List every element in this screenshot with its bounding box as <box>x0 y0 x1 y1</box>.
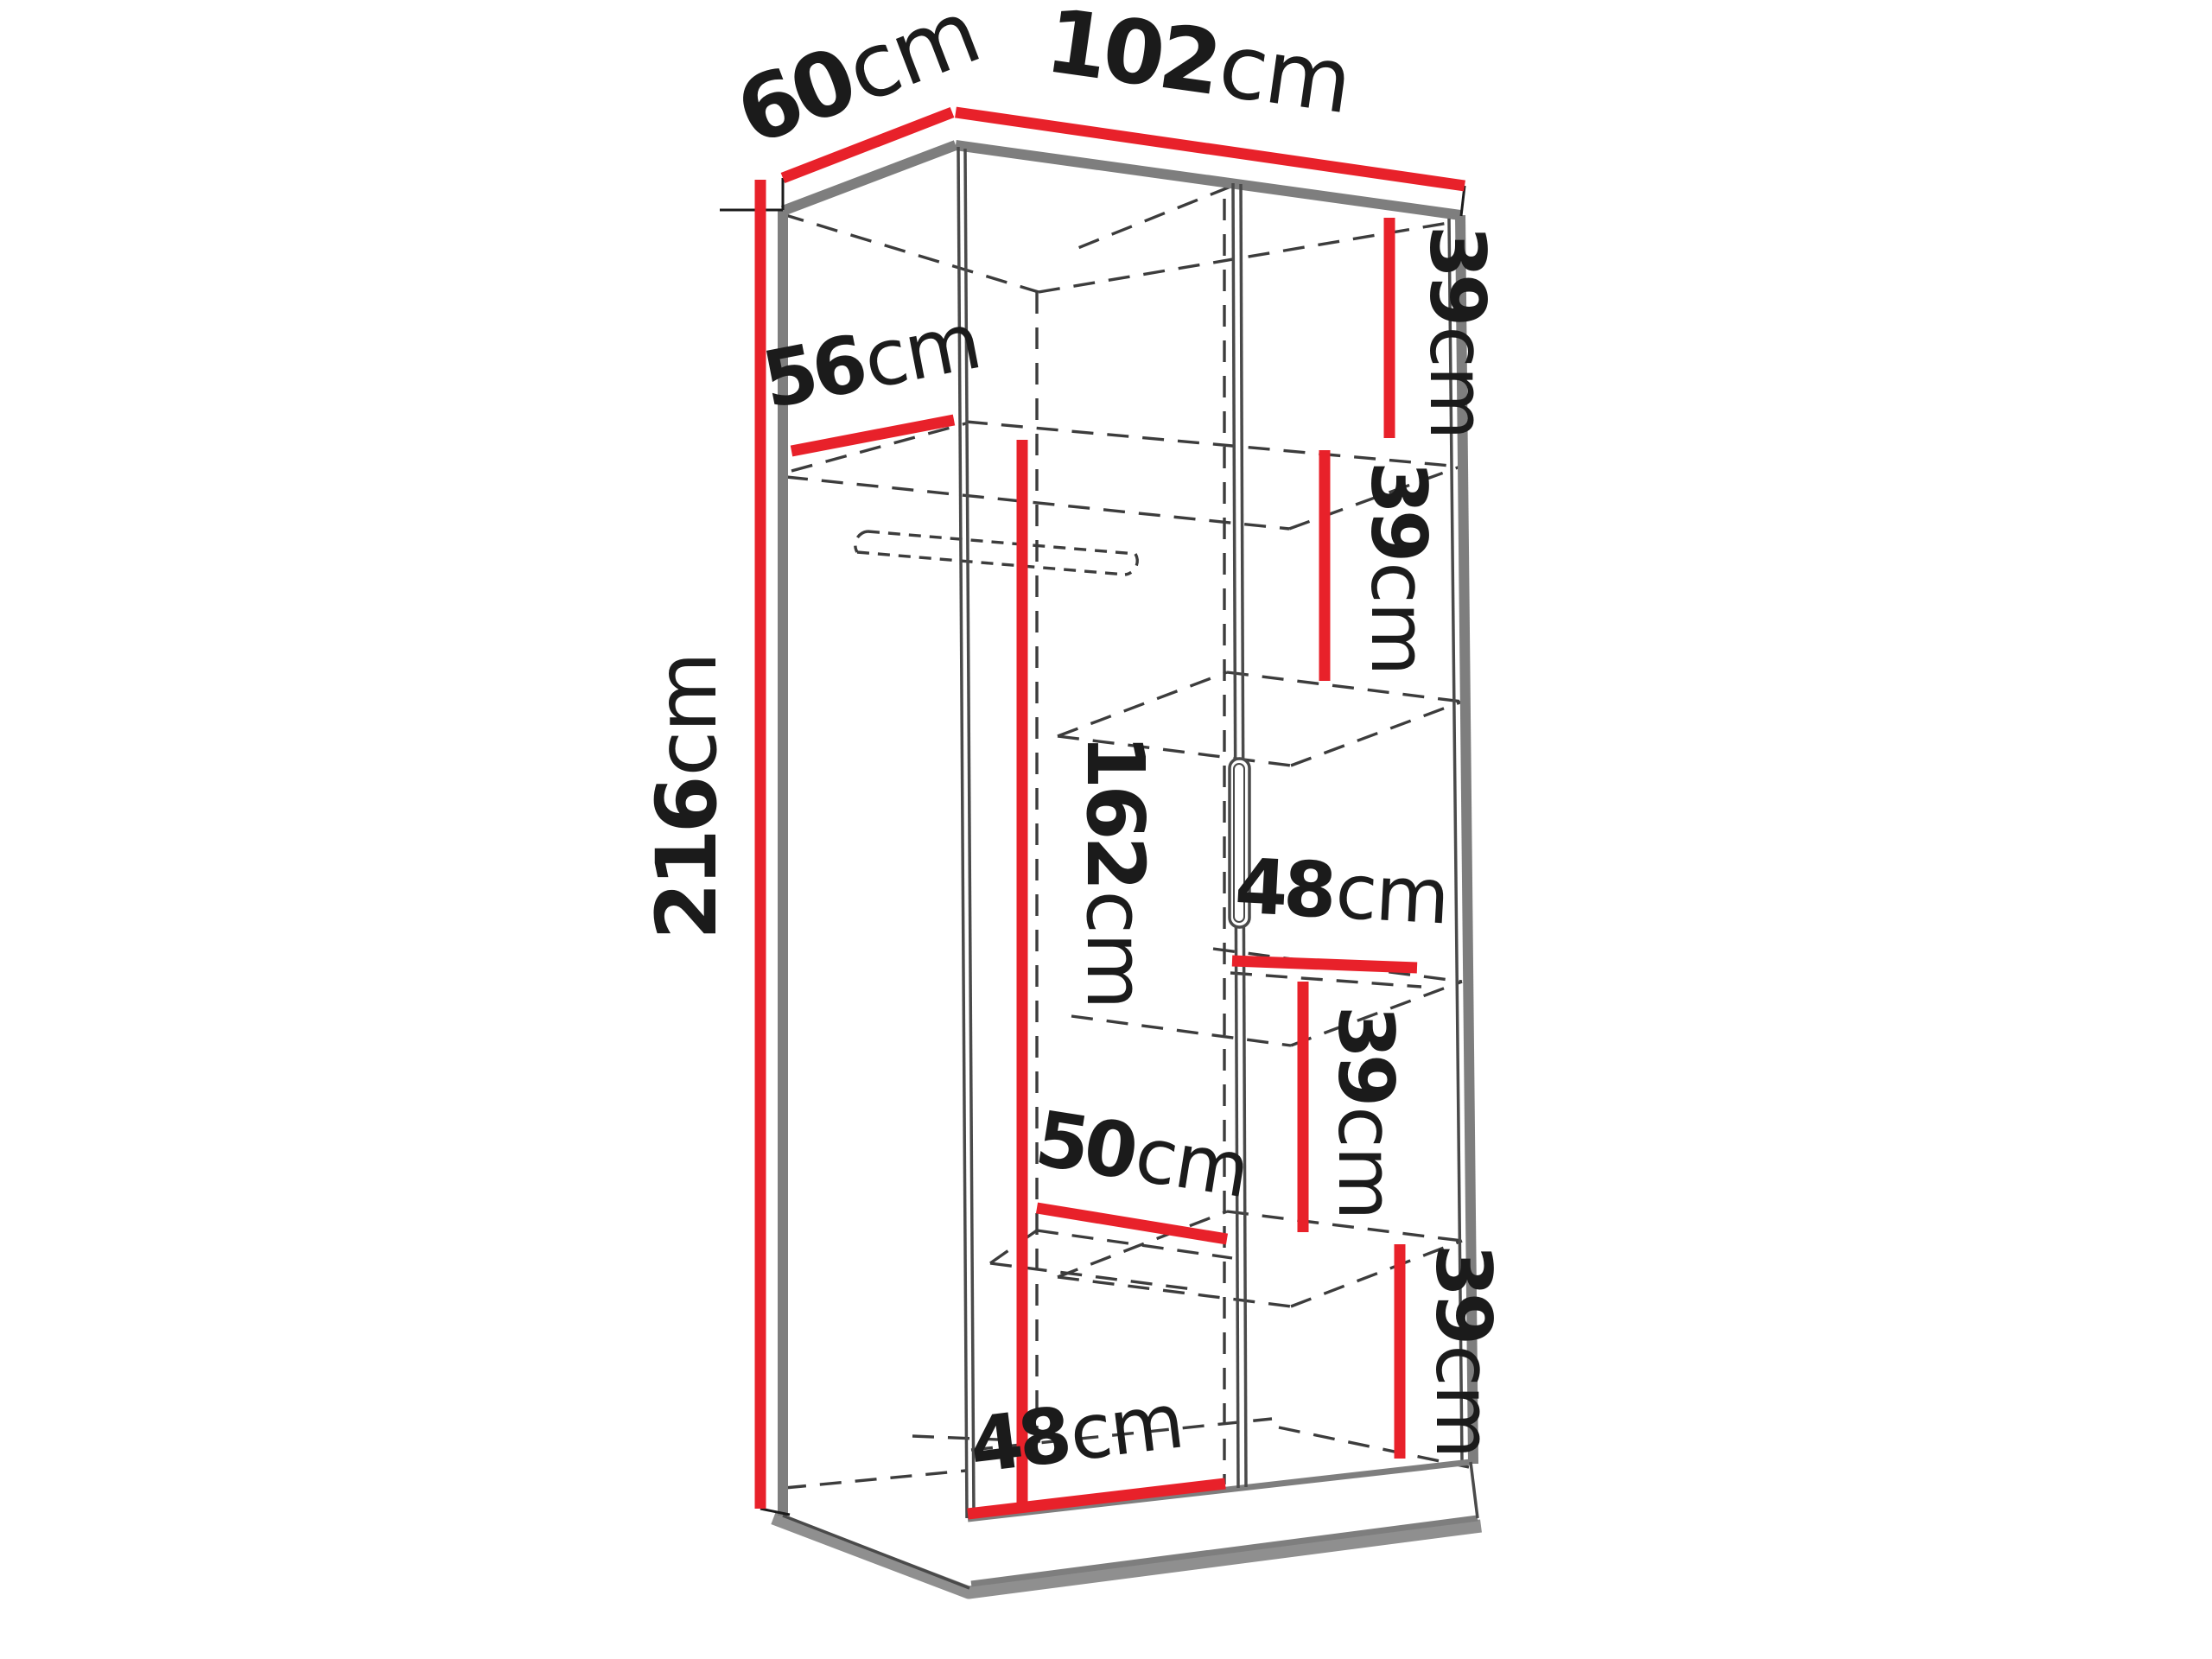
dim-label-hanging-162: 162cm <box>1069 734 1161 1007</box>
dim-label-gap39-4: 39cm <box>1419 1244 1508 1458</box>
plinth-bottom-edge <box>971 1518 1478 1584</box>
dimension-annotations: 60cm 102cm 216cm 56cm 162cm 39cm 39cm 48… <box>639 0 1508 1515</box>
dim-label-gap39-3: 39cm <box>1321 1006 1410 1219</box>
bottom-left-edge <box>783 1516 969 1588</box>
partition-top-depth-edge <box>1071 187 1230 251</box>
top-front-edge <box>956 145 1460 215</box>
shelf2-front-edge <box>1227 672 1462 702</box>
shelf3-back-edge <box>1071 1016 1291 1046</box>
dim-label-height-216: 216cm <box>639 653 735 940</box>
dim-label-depth-60: 60cm <box>723 0 992 166</box>
back-top-edge-right <box>1039 221 1459 292</box>
floor-left-side-edge <box>785 1471 966 1488</box>
right-plinth-edge <box>1471 1462 1478 1518</box>
dim-line-width-48-right <box>1232 961 1417 968</box>
left-shelf-left-depth-edge <box>990 1230 1037 1263</box>
shelf4-back-edge <box>1058 1277 1291 1306</box>
dim-line-width-48-bottom <box>968 1484 1225 1514</box>
dim-line-shelf-depth-56 <box>791 420 954 451</box>
top-left-edge <box>783 145 956 211</box>
back-top-edge-left <box>783 214 1039 292</box>
shelf2-right-depth-edge <box>1291 702 1462 766</box>
dim-label-width-50: 50cm <box>1030 1094 1255 1215</box>
dim-label-width-48-right: 48cm <box>1233 842 1451 942</box>
diagram-canvas: 60cm 102cm 216cm 56cm 162cm 39cm 39cm 48… <box>0 0 2212 1659</box>
hanging-rail <box>855 531 1137 575</box>
dim-line-width-102 <box>956 112 1465 186</box>
shelf2-left-depth-edge <box>1058 672 1227 736</box>
dim-label-width-102: 102cm <box>1040 0 1357 134</box>
wardrobe-dimension-diagram: 60cm 102cm 216cm 56cm 162cm 39cm 39cm 48… <box>0 0 2212 1659</box>
dim-label-width-48-bottom: 48cm <box>965 1376 1187 1491</box>
dim-label-shelf-depth-56: 56cm <box>755 296 987 426</box>
dim-label-gap39-1: 39cm <box>1413 226 1502 439</box>
dim-label-gap39-2: 39cm <box>1354 461 1443 675</box>
shelf3-front-lower-edge <box>1230 973 1421 987</box>
